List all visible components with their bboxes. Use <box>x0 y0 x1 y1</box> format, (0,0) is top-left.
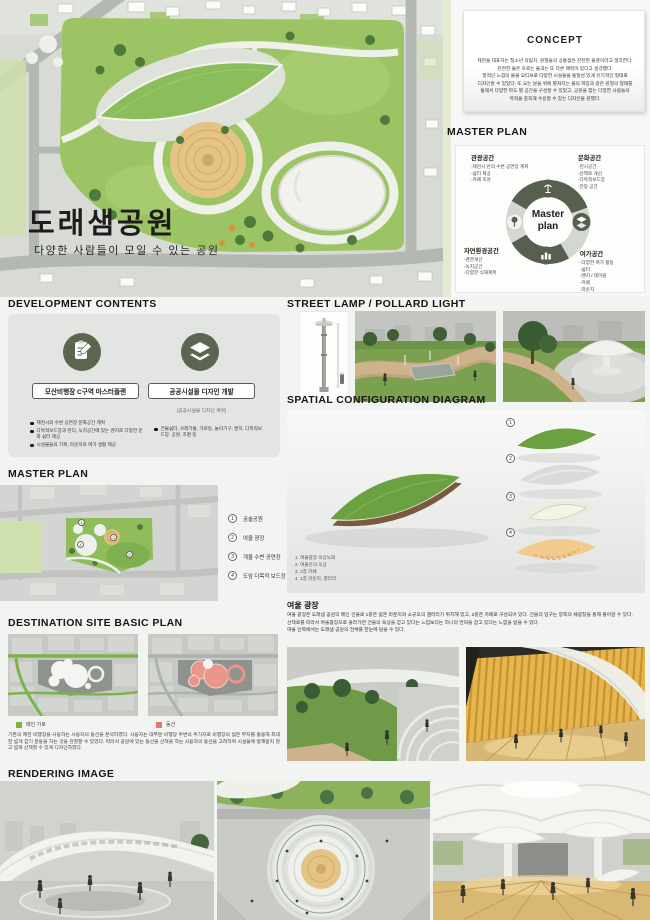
yeoul-heading: 여울 광장 <box>287 600 319 611</box>
legend-number: 3 <box>228 552 237 561</box>
bullet-dot-icon <box>154 428 158 432</box>
layer-number: 2 <box>506 454 515 463</box>
rendering-3-canopy-interior <box>433 781 650 920</box>
development-left-label: 모산비행장 C구역 마스터플랜 <box>32 383 139 399</box>
development-bullet: 다목적보드장과 잔디, 녹지공간에 있는 벤치로 다양한 문화 쉼터 제공 <box>30 428 146 440</box>
quadrant-title: 여가공간 <box>580 249 614 258</box>
masterplan-diagram-panel: Master plan 관광공간 -제천시 안의 수변 공연장 계획 -쉼터 제… <box>455 145 645 293</box>
streetlamp-icon <box>300 312 348 401</box>
development-right-label: 공공시설물 디자인 개발 <box>148 383 255 399</box>
quadrant-item: -카페 조성 <box>471 177 528 184</box>
spatial-graphic <box>287 410 645 593</box>
destination-map-2 <box>148 634 278 716</box>
fountain-icon <box>539 180 557 198</box>
vertical-divider <box>443 0 451 297</box>
development-bullet: 시설물들의 기획, 라운지로 여가 생활 제공 <box>30 442 146 448</box>
quadrant-leisure: 여가공간 -다양한 여가 활동 -쉼터 -벤치 / 테이블 -카페 -라운지 <box>580 249 614 293</box>
quadrant-item: -전시공간 <box>578 164 605 171</box>
quadrant-nature: 자연환경공간 -경관개선 -녹지공간 -다양한 식재계획 <box>464 246 499 277</box>
streetlamp-heading: STREET LAMP / POLLARD LIGHT <box>287 298 466 310</box>
circular-plaza <box>267 815 375 920</box>
legend-number: 4 <box>228 571 237 580</box>
bullet-dot-icon <box>30 422 34 426</box>
masterplan-map-legend: 1 곰솔공원 2 여울 광장 3 개울 수변 공연장 4 도암 다목적 보드장 <box>228 514 286 580</box>
yeoul-line: 산책로를 따라서 여울광장으로 올라가면 건물의 옥상을 걷고 있다는 느낌보다… <box>287 620 645 628</box>
concept-line: 디자인할 수 있었다. 또 오는 날들 위에 펼쳐지는 물의 파장과 같은 원형… <box>470 80 640 88</box>
concept-text: 제천을 대표하는 청소년 의림지, 원형들의 공통점은 잔잔한 물결이라고 생각… <box>470 57 640 102</box>
legend-label: 곰솔공원 <box>243 515 263 523</box>
yeoul-render-1 <box>287 647 459 761</box>
masterplan-map-heading: MASTER PLAN <box>8 468 88 480</box>
destination-paragraph: 기존의 제천 비행장을 사용하는 사용자의 동선을 분석하였다. 사용자는 대부… <box>8 733 280 753</box>
map-marker: 2 <box>126 551 133 558</box>
donut-center-line1: Master <box>508 209 588 221</box>
bullet-text: 시설물들의 기획, 라운지로 여가 생활 제공 <box>37 442 117 448</box>
legend-label: 메인 가로 <box>26 721 46 728</box>
layer-caption: 4. 1층 라운지, 갤러리 <box>295 575 336 582</box>
page-title: 도래샘공원 <box>28 200 176 242</box>
bullet-text: 제천시의 수변 공연장 문화공간 계획 <box>37 420 106 426</box>
quadrant-title: 문화공간 <box>578 153 605 162</box>
development-bullet: 건물쉼터, 쓰레기통, 가로등, 놀이기구, 벤치, 다목적보드장, 공원, 조… <box>154 426 266 439</box>
leaf-building-exploded <box>321 457 469 540</box>
spatial-heading: SPATIAL CONFIGURATION DIAGRAM <box>287 394 486 406</box>
bullet-text: 건물쉼터, 쓰레기통, 가로등, 놀이기구, 벤치, 다목적보드장, 공원, 조… <box>161 426 267 439</box>
rendering-1-skatepark <box>0 781 214 920</box>
rendering-heading: RENDERING IMAGE <box>8 768 114 780</box>
bullet-dot-icon <box>30 444 34 448</box>
layer-number: 4 <box>506 528 515 537</box>
legend-label: 여울 광장 <box>243 534 264 542</box>
legend-number: 2 <box>228 533 237 542</box>
development-bullet: 제천시의 수변 공연장 문화공간 계획 <box>30 420 146 426</box>
yeoul-paragraph: 여울 광장은 도래샘 공원의 메인 건물로 1층은 넓은 라운지와 소규모의 갤… <box>287 612 645 635</box>
site-plan-image: 도래샘공원 다양한 사람들이 모일 수 있는 공원 <box>0 0 443 297</box>
streetlamp-render-2 <box>503 311 645 402</box>
yeoul-line: 여울 안쪽에서는 도래샘 공원의 전체를 한눈에 담을 수 있다. <box>287 627 645 635</box>
yeoul-line: 여울 광장은 도래샘 공원의 메인 건물로 1층은 넓은 라운지와 소규모의 갤… <box>287 612 645 620</box>
quadrant-title: 관광공간 <box>471 153 528 162</box>
development-panel: 모산비행장 C구역 마스터플랜 공공시설물 디자인 개발 [공공시설물 디자인 … <box>8 314 280 457</box>
layer-stack <box>513 423 603 573</box>
spatial-panel: 1 2 3 4 1. 여울광장 옥상녹화 2. 여울안의 옥상 3. 2층 카페… <box>287 410 645 593</box>
concept-line: 목적을 충족해 수용할 수 있는 디자인을 원했다. <box>470 95 640 103</box>
streetlamp-render-1 <box>355 311 496 402</box>
quadrant-item: -경관개선 <box>464 257 499 264</box>
layer-number: 3 <box>506 492 515 501</box>
quadrant-item: -다양한 여가 활동 <box>580 260 614 267</box>
quadrant-item: -카페 <box>580 280 614 287</box>
chart-icon <box>537 247 555 265</box>
concept-line: 정적인 느낌의 물을 모티브로 다양한 시설물을 통일성 있게 유기적인 형태로 <box>470 72 640 80</box>
yeoul-render-2 <box>466 647 645 761</box>
concept-line: 잔잔한 물은 흐르는 물과는 또 다른 매력이 있다고 생각했다. <box>470 65 640 73</box>
layer-caption: 1. 여울광장 옥상녹화 <box>295 554 336 561</box>
concept-line: 제천을 대표하는 청소년 의림지, 원형들의 공통점은 잔잔한 물결이라고 생각… <box>470 57 640 65</box>
development-heading: DEVELOPMENT CONTENTS <box>8 298 157 310</box>
destination-map-1 <box>8 634 138 716</box>
legend-item: 4 도암 다목적 보드장 <box>228 571 286 580</box>
layer-caption: 3. 2층 카페 <box>295 568 336 575</box>
legend-number: 1 <box>228 514 237 523</box>
red-legend-swatch <box>156 722 162 728</box>
page-subtitle: 다양한 사람들이 모일 수 있는 공원 <box>34 242 219 258</box>
destination-heading: DESTINATION SITE BASIC PLAN <box>8 617 183 629</box>
quadrant-tourism: 관광공간 -제천시 안의 수변 공연장 계획 -쉼터 제공 -카페 조성 <box>471 153 528 184</box>
design-poster: 도래샘공원 다양한 사람들이 모일 수 있는 공원 CONCEPT 제천을 대표… <box>0 0 650 920</box>
concept-box: CONCEPT 제천을 대표하는 청소년 의림지, 원형들의 공통점은 잔잔한 … <box>463 10 645 112</box>
quadrant-item: -벤치 / 테이블 <box>580 273 614 280</box>
concept-line: 통해서 다양한 파도 별 공간을 구성할 수 있었고, 공원을 찾는 다양한 사… <box>470 87 640 95</box>
legend-label: 도암 다목적 보드장 <box>243 572 286 580</box>
layer-captions: 1. 여울광장 옥상녹화 2. 여울안의 옥상 3. 2층 카페 4. 1층 라… <box>295 554 336 582</box>
legend-item: 3 개울 수변 공연장 <box>228 552 286 561</box>
pond <box>279 156 385 230</box>
bullet-dot-icon <box>30 430 34 434</box>
quadrant-item: -라운지 <box>580 287 614 294</box>
destination-legend-green: 메인 가로 <box>16 721 46 728</box>
map-marker: 4 <box>77 541 84 548</box>
quadrant-title: 자연환경공간 <box>464 246 499 255</box>
destination-legend-red: 동선 <box>156 721 175 728</box>
concept-heading: CONCEPT <box>464 35 646 46</box>
development-right-sublabel: [공공시설물 디자인 계획] <box>148 407 255 414</box>
masterplan-diagram-heading: MASTER PLAN <box>447 126 527 138</box>
layer-caption: 2. 여울안의 옥상 <box>295 561 336 568</box>
bullet-text: 다목적보드장과 잔디, 녹지공간에 있는 벤치로 다양한 문화 쉼터 제공 <box>37 428 147 440</box>
streetlamp-drawing <box>299 311 349 402</box>
legend-label: 개울 수변 공연장 <box>243 553 281 561</box>
sand-circle <box>170 122 246 198</box>
legend-label: 동선 <box>166 721 175 728</box>
legend-item: 1 곰솔공원 <box>228 514 286 523</box>
quadrant-item: -제천시 안의 수변 공연장 계획 <box>471 164 528 171</box>
rendering-2-plaza-aerial <box>217 781 430 920</box>
quadrant-item: -다목적보드장 <box>578 177 605 184</box>
layer-number: 1 <box>506 418 515 427</box>
quadrant-item: -다양한 식재계획 <box>464 270 499 277</box>
map-marker: 1 <box>78 519 85 526</box>
quadrant-item: -전망 공간 <box>578 184 605 191</box>
masterplan-map: 1 2 3 4 <box>0 485 218 601</box>
map-marker: 3 <box>110 534 117 541</box>
donut-center-label: Master plan <box>508 209 588 232</box>
legend-item: 2 여울 광장 <box>228 533 286 542</box>
quadrant-culture: 문화공간 -전시공간 -산책로 개선 -다목적보드장 -전망 공간 <box>578 153 605 191</box>
donut-center-line2: plan <box>508 221 588 233</box>
green-legend-swatch <box>16 722 22 728</box>
